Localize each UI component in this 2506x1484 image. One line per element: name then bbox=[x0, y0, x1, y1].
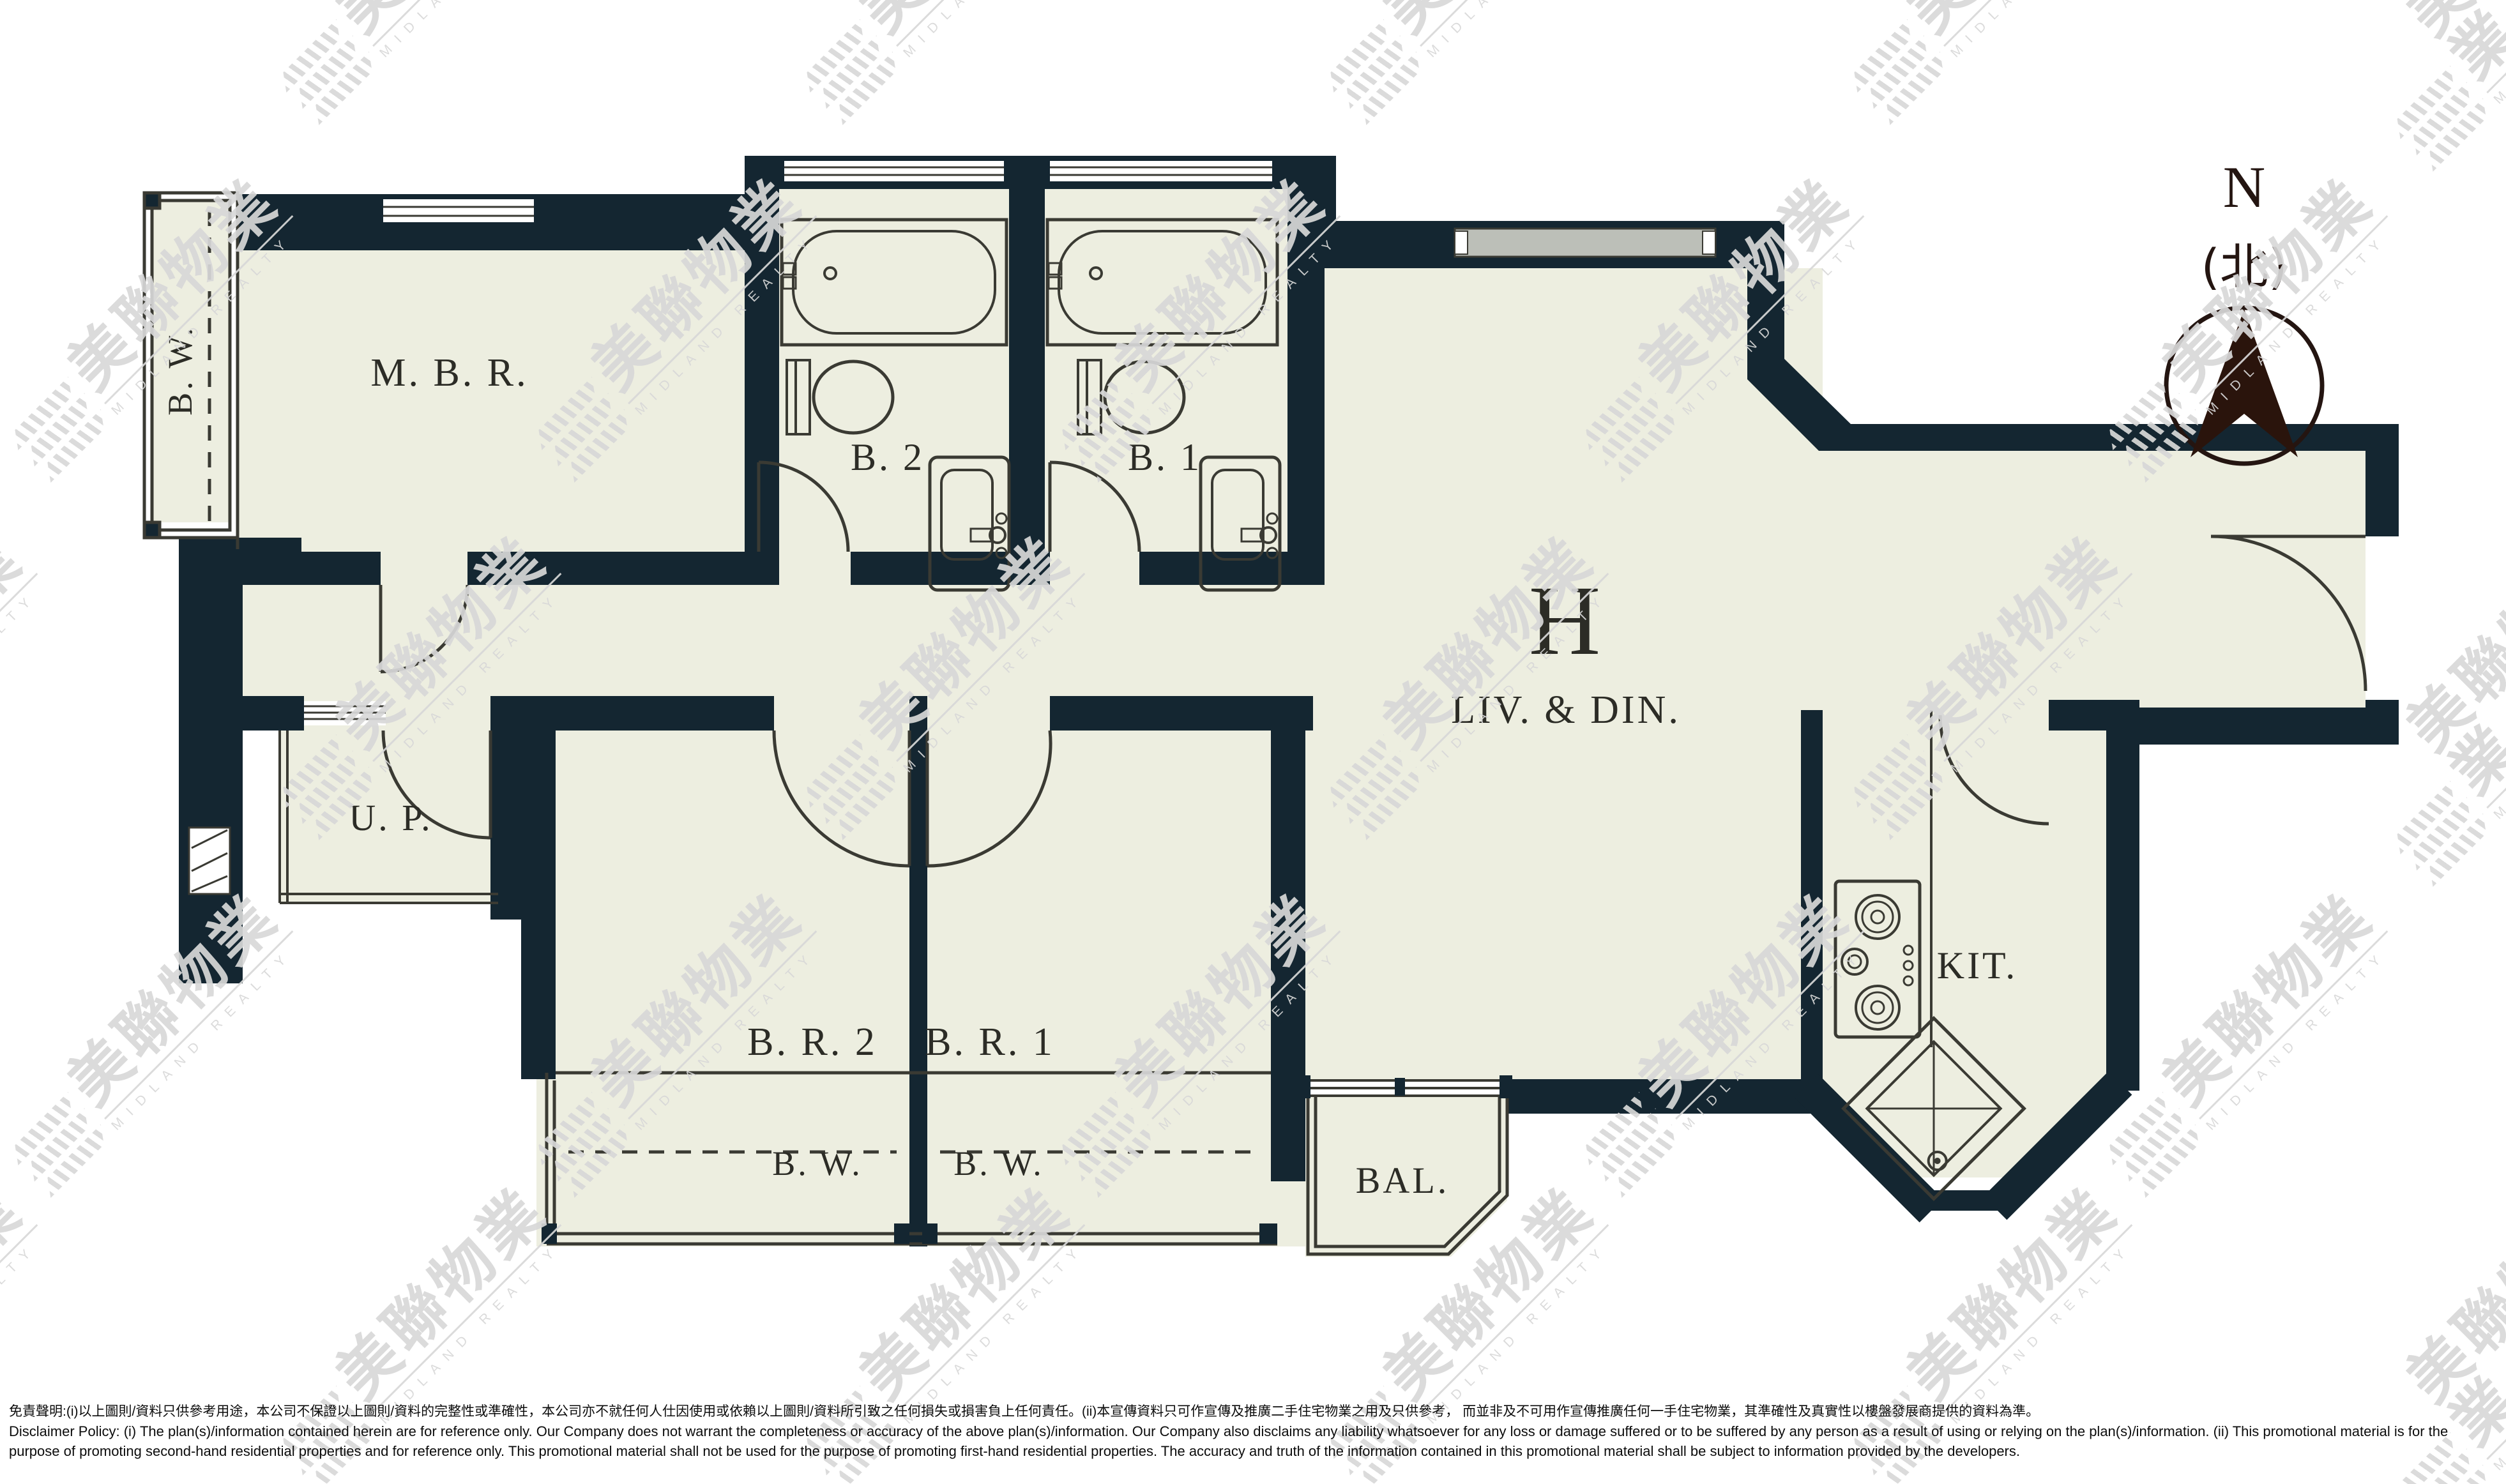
label-unit: H bbox=[1529, 565, 1604, 676]
label-b2: B. 2 bbox=[851, 436, 925, 478]
floorplan-page: B. W. M. B. R. B. 2 B. 1 H LIV. & DIN. U… bbox=[0, 0, 2506, 1484]
disclaimer-en-line2: purpose of promoting second-hand residen… bbox=[9, 1441, 2500, 1461]
compass-n-label: N bbox=[2223, 155, 2265, 220]
label-b1: B. 1 bbox=[1128, 436, 1202, 478]
disclaimer-en-line1: Disclaimer Policy: (i) The plan(s)/infor… bbox=[9, 1421, 2500, 1441]
label-kit: KIT. bbox=[1937, 944, 2018, 987]
label-bal: BAL. bbox=[1356, 1160, 1450, 1201]
compass-north-cn: (北) bbox=[2201, 238, 2287, 295]
label-bw-left: B. W. bbox=[161, 325, 199, 416]
disclaimer-zh: 免責聲明:(i)以上圖則/資料只供參考用途，本公司不保證以上圖則/資料的完整性或… bbox=[9, 1402, 2500, 1421]
floorplan-drawing: B. W. M. B. R. B. 2 B. 1 H LIV. & DIN. U… bbox=[0, 0, 2506, 1433]
label-up: U. P. bbox=[349, 797, 432, 838]
label-mbr: M. B. R. bbox=[370, 351, 528, 395]
disclaimer: 免責聲明:(i)以上圖則/資料只供參考用途，本公司不保證以上圖則/資料的完整性或… bbox=[9, 1402, 2500, 1461]
label-br1: B. R. 1 bbox=[925, 1020, 1055, 1064]
label-livdin: LIV. & DIN. bbox=[1451, 688, 1681, 732]
label-bw-br2: B. W. bbox=[772, 1144, 863, 1183]
label-br2: B. R. 2 bbox=[747, 1020, 877, 1064]
compass: N (北) bbox=[2166, 155, 2322, 464]
label-bw-br1: B. W. bbox=[953, 1144, 1044, 1183]
